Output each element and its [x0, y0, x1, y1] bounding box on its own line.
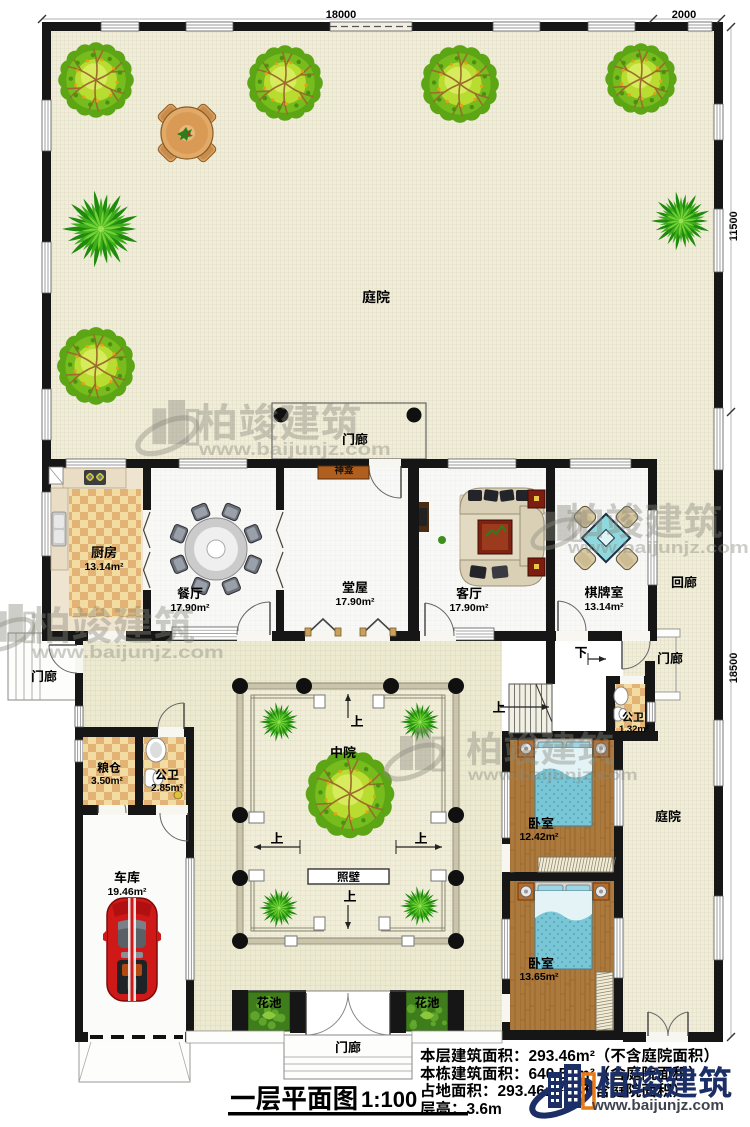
svg-text:13.14m²: 13.14m² — [84, 561, 124, 573]
svg-text:1.32m²: 1.32m² — [619, 724, 649, 735]
svg-text:18500: 18500 — [728, 653, 740, 684]
svg-text:11500: 11500 — [728, 211, 740, 241]
svg-text:www.baijunjz.com: www.baijunjz.com — [567, 538, 749, 557]
svg-text:www.baijunjz.com: www.baijunjz.com — [31, 642, 224, 662]
svg-text:293.46m²: 293.46m² — [529, 1048, 595, 1065]
svg-text:www.baijunjz.com: www.baijunjz.com — [467, 767, 638, 784]
svg-text:12.42m²: 12.42m² — [519, 831, 559, 843]
svg-text:1:100: 1:100 — [361, 1087, 417, 1112]
svg-text:19.46m²: 19.46m² — [107, 886, 147, 898]
svg-text:www.baijunjz.com: www.baijunjz.com — [591, 1097, 724, 1114]
svg-text:17.90m²: 17.90m² — [335, 596, 375, 608]
svg-text:13.65m²: 13.65m² — [519, 971, 559, 983]
svg-text:17.90m²: 17.90m² — [170, 602, 210, 614]
svg-text:3.6m: 3.6m — [467, 1101, 502, 1118]
svg-text:13.14m²: 13.14m² — [584, 601, 624, 613]
svg-text:3.50m²: 3.50m² — [91, 776, 123, 787]
svg-text:2.85m²: 2.85m² — [151, 783, 183, 794]
svg-text:17.90m²: 17.90m² — [449, 602, 489, 614]
